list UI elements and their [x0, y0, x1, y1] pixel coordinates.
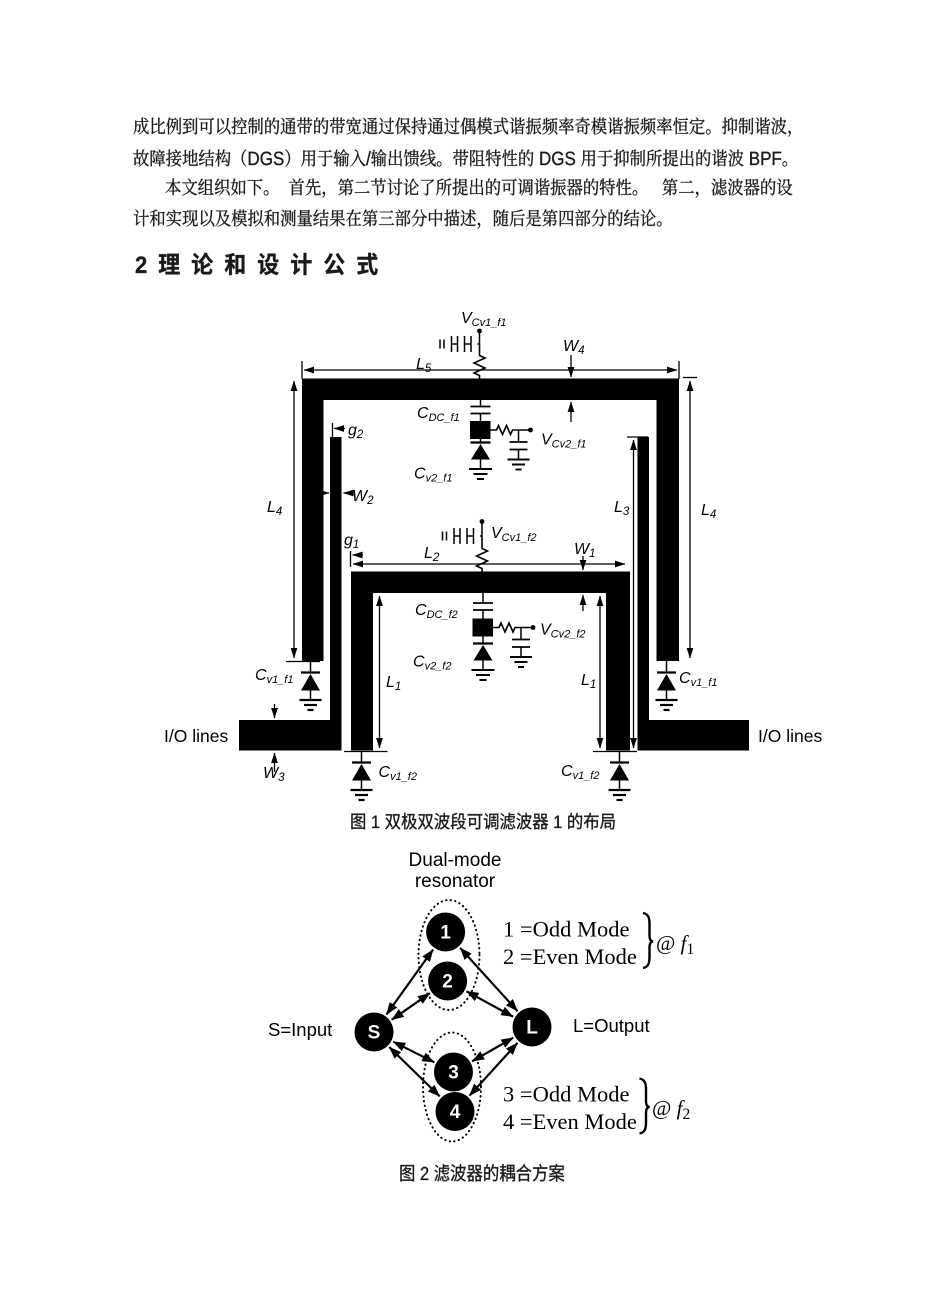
- svg-text:VCv1_f1: VCv1_f1: [461, 310, 507, 329]
- svg-text:W1: W1: [574, 541, 596, 560]
- svg-text:I/O lines: I/O lines: [758, 726, 822, 746]
- svg-text:g1: g1: [344, 532, 359, 551]
- svg-text:Cv2_f2: Cv2_f2: [413, 654, 451, 673]
- svg-text:3: 3: [448, 1063, 459, 1084]
- svg-text:Cv1_f1: Cv1_f1: [679, 670, 717, 689]
- svg-text:L1: L1: [386, 674, 401, 693]
- svg-text:Cv1_f1: Cv1_f1: [255, 667, 293, 686]
- svg-text:L4: L4: [267, 499, 282, 518]
- svg-text:resonator: resonator: [415, 871, 496, 892]
- svg-text:VCv2_f1: VCv2_f1: [541, 432, 587, 451]
- svg-text:S: S: [368, 1023, 381, 1044]
- svg-text:4 =Even Mode: 4 =Even Mode: [503, 1109, 637, 1134]
- svg-text:CDC_f2: CDC_f2: [415, 602, 458, 621]
- svg-text:L3: L3: [614, 499, 630, 518]
- svg-text:L: L: [526, 1018, 538, 1039]
- svg-text:Cv1_f2: Cv1_f2: [561, 763, 599, 782]
- svg-text:1: 1: [440, 923, 451, 944]
- svg-text:L5: L5: [416, 356, 432, 375]
- svg-text:L=Output: L=Output: [573, 1015, 650, 1036]
- svg-text:L4: L4: [701, 502, 716, 521]
- svg-text:4: 4: [450, 1102, 461, 1123]
- svg-text:I/O lines: I/O lines: [164, 726, 228, 746]
- svg-text:1 =Odd Mode: 1 =Odd Mode: [503, 917, 629, 942]
- svg-text:W3: W3: [263, 765, 285, 784]
- svg-text:Dual-mode: Dual-mode: [409, 850, 502, 871]
- svg-text:2: 2: [442, 972, 453, 993]
- svg-text:2 =Even Mode: 2 =Even Mode: [503, 944, 637, 969]
- svg-text:g2: g2: [348, 422, 364, 441]
- svg-text:Cv1_f2: Cv1_f2: [379, 764, 417, 783]
- svg-text:@ f1: @ f1: [656, 931, 694, 958]
- svg-text:VCv2_f2: VCv2_f2: [540, 622, 586, 641]
- svg-text:L2: L2: [424, 545, 440, 564]
- svg-text:@ f2: @ f2: [652, 1096, 690, 1123]
- svg-text:W4: W4: [563, 338, 585, 357]
- svg-text:L1: L1: [581, 672, 596, 691]
- svg-text:S=Input: S=Input: [268, 1019, 332, 1040]
- svg-text:W2: W2: [352, 488, 374, 507]
- svg-text:Cv2_f1: Cv2_f1: [414, 466, 452, 485]
- svg-text:3 =Odd Mode: 3 =Odd Mode: [503, 1082, 629, 1107]
- svg-text:VCv1_f2: VCv1_f2: [491, 525, 537, 544]
- svg-text:CDC_f1: CDC_f1: [417, 405, 460, 424]
